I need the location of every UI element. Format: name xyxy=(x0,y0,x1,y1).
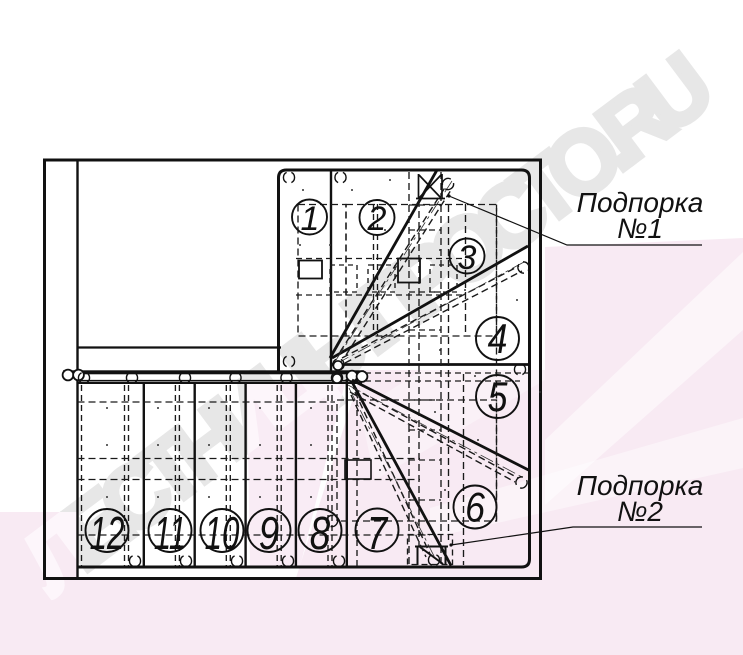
svg-text:12: 12 xyxy=(90,508,125,559)
svg-text:1: 1 xyxy=(301,200,320,238)
svg-text:6: 6 xyxy=(465,485,485,531)
svg-text:5: 5 xyxy=(488,374,508,420)
svg-text:4: 4 xyxy=(488,316,508,362)
svg-text:8: 8 xyxy=(310,507,330,559)
svg-text:3: 3 xyxy=(458,239,477,277)
svg-text:7: 7 xyxy=(367,507,389,559)
svg-text:2: 2 xyxy=(367,200,387,238)
svg-text:9: 9 xyxy=(259,507,279,559)
svg-text:№2: №2 xyxy=(617,496,663,527)
svg-text:10: 10 xyxy=(205,508,240,559)
svg-text:№1: №1 xyxy=(617,213,663,244)
svg-text:11: 11 xyxy=(154,508,186,559)
